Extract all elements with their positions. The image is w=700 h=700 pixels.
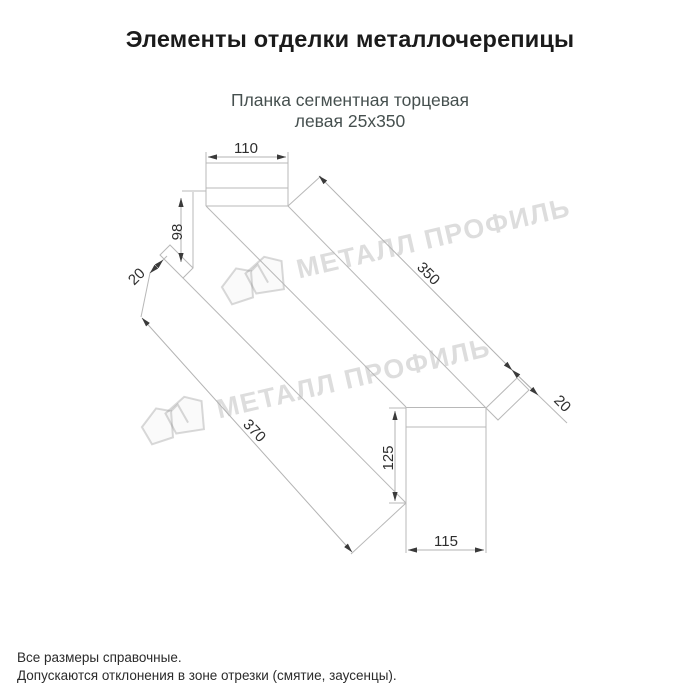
dimension-lines [142, 157, 538, 552]
dim-label-bottom-width: 115 [434, 533, 458, 550]
dim-label-top-length: 350 [413, 259, 443, 289]
dim-label-bottom-length: 370 [239, 416, 269, 446]
dim-label-right-hem: 20 [550, 392, 574, 416]
dimension-labels: 110 98 20 350 370 20 125 115 [125, 140, 574, 550]
dim-label-left-height: 98 [169, 224, 186, 241]
extension-lines [141, 176, 567, 554]
top-profile [160, 152, 288, 278]
bottom-profile [406, 378, 529, 553]
dim-label-right-height: 125 [380, 445, 397, 470]
dim-label-top-width: 110 [234, 140, 258, 157]
footer-note-line1: Все размеры справочные. [17, 649, 397, 667]
footer-note-line2: Допускаются отклонения в зоне отрезки (с… [17, 667, 397, 685]
strip-body [183, 206, 486, 503]
footer-notes: Все размеры справочные. Допускаются откл… [17, 649, 397, 685]
technical-drawing: 110 98 20 350 370 20 125 115 [0, 0, 700, 700]
dim-label-left-hem: 20 [125, 265, 149, 289]
